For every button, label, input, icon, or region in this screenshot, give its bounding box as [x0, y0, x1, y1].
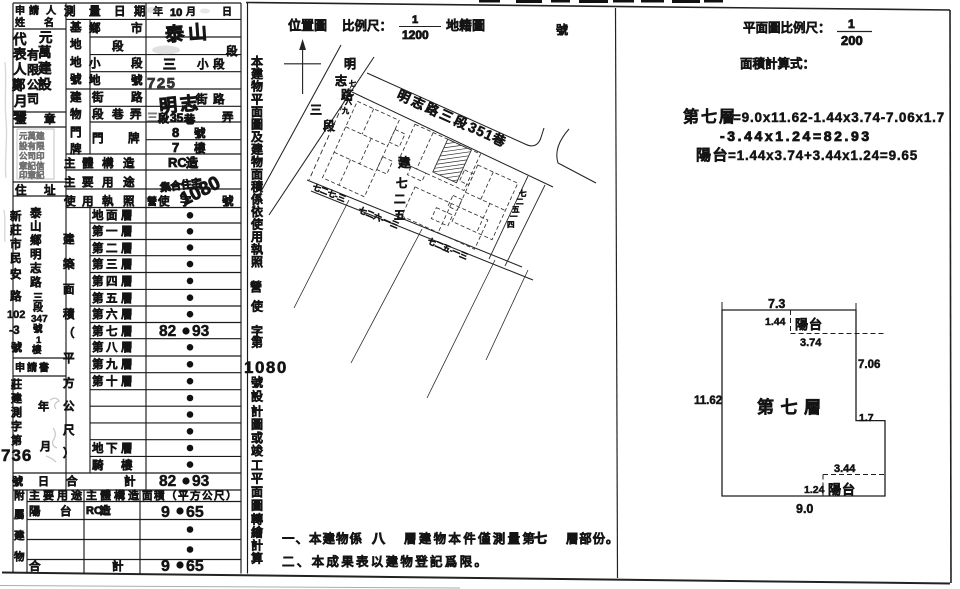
svg-text:路: 路	[10, 289, 22, 303]
svg-text:要: 要	[82, 176, 94, 189]
svg-text:號: 號	[70, 72, 82, 86]
svg-text:號: 號	[194, 126, 206, 140]
svg-text:陽台: 陽台	[696, 146, 729, 164]
svg-text:名: 名	[44, 16, 54, 29]
svg-text:民: 民	[10, 252, 22, 265]
svg-text:號: 號	[222, 194, 234, 208]
svg-text:主: 主	[86, 488, 97, 502]
svg-text:圖: 圖	[251, 418, 263, 432]
svg-text:營: 營	[250, 279, 262, 294]
svg-text:號: 號	[556, 22, 568, 37]
svg-text:層: 層	[121, 258, 133, 271]
svg-text:請: 請	[27, 361, 37, 374]
svg-text:公司印: 公司印	[19, 151, 45, 161]
svg-text:1.44: 1.44	[765, 316, 786, 328]
svg-text:人: 人	[13, 62, 27, 77]
svg-text:積: 積	[62, 307, 75, 321]
svg-text:93: 93	[192, 323, 210, 340]
svg-text:造: 造	[128, 488, 140, 502]
svg-text:明志路三段351巷: 明志路三段351巷	[395, 86, 511, 150]
svg-text:照: 照	[123, 195, 135, 208]
svg-text:營: 營	[147, 195, 157, 208]
svg-text:要: 要	[43, 489, 54, 502]
svg-text:層建物本件僅測量第: 層建物本件僅測量第	[404, 531, 537, 546]
svg-text:司: 司	[27, 92, 39, 106]
svg-text:繪: 繪	[251, 525, 264, 540]
svg-text:月: 月	[13, 94, 28, 109]
svg-text:段: 段	[92, 107, 104, 121]
svg-text:）: ）	[63, 446, 75, 460]
svg-text:1: 1	[848, 17, 855, 31]
svg-text:九: 九	[341, 106, 349, 115]
svg-text:面: 面	[106, 209, 118, 222]
svg-text:六: 六	[345, 97, 352, 106]
svg-text:一、本建物係: 一、本建物係	[282, 531, 363, 546]
svg-text:基: 基	[69, 20, 82, 34]
svg-text:轉: 轉	[251, 512, 263, 527]
svg-text:樓: 樓	[121, 458, 133, 472]
svg-text:3.44: 3.44	[834, 463, 856, 475]
svg-text:元: 元	[39, 30, 53, 45]
svg-text:七: 七	[534, 531, 547, 546]
svg-text:構: 構	[102, 156, 114, 170]
svg-text:層: 層	[121, 325, 133, 338]
svg-text:八: 八	[105, 341, 118, 354]
svg-text:725: 725	[147, 75, 177, 92]
svg-text:地: 地	[92, 208, 104, 222]
svg-text:9: 9	[161, 558, 170, 575]
svg-text:段: 段	[226, 44, 238, 58]
svg-text:比例尺：: 比例尺：	[342, 18, 392, 33]
svg-text:地籍圖: 地籍圖	[446, 18, 485, 33]
svg-text:樓: 樓	[194, 141, 206, 155]
svg-text:建: 建	[13, 529, 25, 542]
svg-text:書: 書	[39, 361, 49, 374]
svg-text:65: 65	[186, 504, 204, 521]
svg-text:門: 門	[92, 132, 104, 145]
svg-text:層: 層	[121, 275, 133, 288]
svg-text:計: 計	[251, 538, 263, 553]
svg-text:址: 址	[44, 183, 56, 197]
svg-text:鄉: 鄉	[89, 21, 101, 35]
svg-text:主: 主	[64, 175, 76, 189]
svg-text:第: 第	[92, 224, 104, 238]
svg-text:門: 門	[70, 126, 82, 139]
svg-text:七: 七	[106, 324, 118, 338]
svg-text:7.06: 7.06	[858, 359, 880, 371]
svg-text:方: 方	[63, 376, 75, 390]
svg-text:段: 段	[323, 118, 336, 133]
svg-text:或: 或	[251, 430, 263, 445]
svg-text:10: 10	[170, 7, 182, 19]
svg-text:七: 七	[396, 176, 408, 190]
svg-text:人: 人	[46, 4, 57, 17]
svg-text:建: 建	[37, 60, 52, 76]
svg-text:章: 章	[44, 112, 56, 126]
svg-text:照: 照	[251, 254, 263, 269]
svg-text:安: 安	[10, 267, 22, 281]
svg-text:用: 用	[81, 195, 94, 208]
svg-text:附: 附	[14, 489, 25, 502]
svg-text:月: 月	[39, 440, 51, 453]
svg-text:93: 93	[192, 473, 210, 490]
svg-text:陽: 陽	[29, 504, 41, 518]
svg-text:弄: 弄	[221, 111, 234, 124]
svg-text:建: 建	[398, 155, 411, 170]
svg-text:圖: 圖	[251, 499, 263, 513]
svg-text:第: 第	[92, 291, 104, 305]
svg-text:申: 申	[15, 4, 25, 17]
svg-text:七: 七	[349, 79, 356, 88]
svg-text:1: 1	[412, 14, 418, 26]
svg-text:巷: 巷	[111, 107, 124, 121]
svg-text:樓: 樓	[32, 344, 42, 356]
svg-text:二: 二	[394, 194, 406, 206]
svg-text:第: 第	[11, 433, 22, 447]
svg-text:算: 算	[251, 551, 263, 566]
svg-text:-3: -3	[9, 323, 20, 337]
svg-text:工: 工	[251, 459, 263, 473]
svg-text:三: 三	[147, 111, 158, 124]
svg-text:代: 代	[12, 31, 27, 47]
svg-text:四: 四	[507, 220, 515, 229]
svg-text:主: 主	[29, 488, 40, 502]
svg-text:年: 年	[38, 399, 49, 413]
svg-text:泰山: 泰山	[163, 20, 212, 46]
svg-text:層: 層	[121, 225, 133, 238]
svg-text:1080: 1080	[244, 358, 288, 377]
svg-text:鄉: 鄉	[30, 233, 42, 247]
svg-text:弄: 弄	[129, 108, 142, 121]
svg-text:102: 102	[7, 309, 25, 321]
svg-text:段: 段	[158, 111, 169, 125]
svg-text:物: 物	[14, 550, 25, 563]
svg-text:第: 第	[92, 357, 104, 371]
svg-text:測: 測	[64, 4, 76, 18]
svg-text:面: 面	[63, 283, 75, 296]
svg-text:日: 日	[222, 6, 232, 18]
svg-text:7: 7	[172, 140, 179, 155]
svg-text:莊: 莊	[9, 223, 22, 237]
svg-text:平: 平	[251, 472, 263, 486]
svg-text:9: 9	[161, 504, 170, 521]
svg-text:日: 日	[38, 475, 49, 488]
svg-text:11.62: 11.62	[694, 395, 722, 407]
svg-text:1200: 1200	[402, 28, 429, 42]
svg-text:造: 造	[123, 156, 135, 170]
svg-text:四: 四	[106, 275, 118, 288]
svg-text:面積計算式：: 面積計算式：	[740, 56, 815, 71]
svg-text:號: 號	[33, 323, 43, 335]
svg-text:第七層: 第七層	[683, 107, 737, 126]
svg-text:地: 地	[70, 37, 82, 51]
svg-text:莊: 莊	[10, 377, 22, 391]
svg-text:1.24: 1.24	[804, 484, 825, 496]
svg-text:設有限: 設有限	[19, 141, 45, 151]
svg-text:第七層: 第七層	[757, 397, 828, 417]
svg-text:=9.0x11.62-1.44x3.74-7.06x1.7: =9.0x11.62-1.44x3.74-7.06x1.7	[733, 110, 945, 125]
svg-text:層: 層	[121, 292, 133, 305]
svg-text:公: 公	[63, 400, 75, 413]
svg-text:途: 途	[71, 488, 83, 502]
svg-text:山: 山	[30, 219, 42, 233]
svg-text:路: 路	[131, 90, 143, 104]
svg-text:1.7: 1.7	[859, 412, 874, 424]
svg-text:街: 街	[91, 90, 104, 104]
svg-text:量: 量	[89, 4, 101, 18]
svg-text:號: 號	[12, 474, 23, 488]
svg-text:35: 35	[170, 111, 184, 125]
svg-text:建: 建	[70, 90, 82, 104]
svg-text:第: 第	[92, 374, 104, 388]
svg-text:牌: 牌	[128, 131, 140, 145]
svg-text:RC: RC	[168, 155, 187, 170]
svg-text:萬: 萬	[38, 44, 52, 60]
svg-text:表: 表	[13, 46, 27, 62]
svg-text:二、本成果表以建物登記爲限。: 二、本成果表以建物登記爲限。	[282, 554, 489, 569]
svg-text:九: 九	[105, 357, 118, 371]
svg-text:設: 設	[251, 389, 264, 404]
svg-text:三: 三	[163, 57, 176, 72]
svg-text:段: 段	[112, 39, 124, 53]
svg-text:合: 合	[66, 474, 78, 488]
svg-text:七二七-三: 七二七-三	[311, 182, 347, 204]
svg-text:層部份。: 層部份。	[566, 531, 619, 546]
svg-text:五: 五	[106, 292, 118, 305]
svg-text:蓋: 蓋	[15, 112, 27, 126]
svg-text:下: 下	[106, 442, 118, 455]
svg-text:層: 層	[121, 375, 133, 388]
svg-text:一: 一	[106, 226, 118, 238]
svg-text:構: 構	[114, 488, 125, 502]
svg-text:明: 明	[344, 57, 356, 71]
svg-text:82: 82	[159, 473, 176, 490]
svg-text:街: 街	[195, 92, 208, 106]
svg-text:主: 主	[64, 156, 76, 170]
svg-text:市: 市	[131, 21, 143, 35]
svg-text:小: 小	[88, 56, 101, 70]
svg-text:造: 造	[100, 504, 111, 517]
svg-text:執: 執	[102, 194, 114, 208]
svg-text:小: 小	[196, 57, 209, 71]
svg-text:元萬建: 元萬建	[19, 131, 45, 141]
svg-text:層: 層	[121, 209, 133, 222]
svg-text:合: 合	[29, 559, 41, 573]
svg-text:地: 地	[89, 73, 101, 87]
svg-text:台: 台	[60, 504, 72, 518]
svg-text:姓: 姓	[14, 16, 25, 29]
svg-text:尺: 尺	[63, 424, 75, 437]
svg-text:計: 計	[251, 404, 263, 419]
svg-text:面積（平方公尺）: 面積（平方公尺）	[142, 489, 238, 502]
svg-text:騎: 騎	[92, 458, 104, 472]
svg-text:用: 用	[57, 489, 68, 502]
svg-text:用: 用	[101, 176, 114, 189]
svg-text:十: 十	[106, 374, 118, 388]
svg-text:設: 設	[38, 76, 52, 92]
svg-text:路: 路	[213, 92, 225, 106]
svg-text:陽台: 陽台	[828, 482, 856, 497]
svg-text:第: 第	[92, 257, 104, 271]
svg-text:平: 平	[63, 352, 75, 365]
svg-text:三: 三	[310, 103, 322, 117]
svg-text:段: 段	[131, 56, 143, 70]
svg-text:82: 82	[159, 323, 176, 340]
svg-text:測: 測	[11, 405, 22, 419]
svg-text:二: 二	[106, 243, 118, 255]
svg-text:住: 住	[15, 183, 27, 197]
svg-text:請: 請	[29, 4, 39, 17]
svg-text:第: 第	[92, 324, 104, 338]
svg-text:志: 志	[30, 261, 42, 275]
svg-text:平面圖比例尺：: 平面圖比例尺：	[743, 20, 831, 35]
svg-text:使: 使	[250, 299, 264, 314]
svg-text:層: 層	[121, 442, 133, 455]
svg-text:地: 地	[70, 55, 82, 69]
svg-text:-3.44x1.24=82.93: -3.44x1.24=82.93	[720, 128, 872, 144]
svg-text:面: 面	[251, 485, 263, 499]
svg-text:物: 物	[70, 107, 82, 121]
svg-text:新: 新	[10, 209, 22, 223]
svg-text:第: 第	[92, 241, 104, 255]
svg-text:層: 層	[121, 308, 133, 321]
svg-text:號: 號	[131, 73, 143, 87]
svg-text:屬: 屬	[14, 508, 25, 521]
svg-text:日: 日	[114, 5, 126, 18]
svg-text:造: 造	[186, 155, 199, 170]
svg-text:使: 使	[157, 194, 170, 208]
svg-text:物: 物	[251, 79, 263, 94]
svg-text:三: 三	[106, 258, 118, 271]
svg-text:200: 200	[841, 33, 863, 48]
svg-text:層: 層	[121, 341, 133, 354]
svg-text:印章記: 印章記	[19, 170, 45, 180]
svg-text:8: 8	[172, 125, 179, 140]
svg-text:號: 號	[251, 375, 263, 390]
svg-text:第: 第	[251, 335, 263, 350]
svg-text:竣: 竣	[251, 443, 264, 458]
svg-text:第: 第	[92, 307, 104, 321]
svg-text:泰: 泰	[29, 206, 42, 220]
svg-text:層: 層	[121, 358, 133, 371]
svg-text:使: 使	[63, 194, 76, 208]
svg-text:期: 期	[134, 4, 146, 18]
svg-text:巷: 巷	[183, 112, 196, 126]
svg-text:陽台: 陽台	[795, 317, 823, 332]
svg-text:八: 八	[371, 531, 386, 546]
svg-text:築: 築	[62, 257, 75, 271]
svg-text:計: 計	[112, 559, 124, 573]
svg-text:計: 計	[124, 474, 136, 488]
svg-text:第: 第	[92, 340, 104, 354]
svg-text:體: 體	[100, 488, 111, 502]
svg-text:3.74: 3.74	[800, 337, 822, 349]
svg-text:路: 路	[30, 275, 42, 289]
svg-text:字: 字	[11, 419, 22, 433]
svg-text:段: 段	[213, 57, 225, 71]
svg-text:號: 號	[11, 340, 22, 354]
svg-text:9.0: 9.0	[796, 502, 813, 516]
svg-text:65: 65	[186, 558, 204, 575]
svg-text:途: 途	[123, 175, 135, 189]
svg-text:志: 志	[335, 73, 347, 88]
svg-text:七二五-一三: 七二五-一三	[426, 236, 469, 262]
svg-text:=1.44x3.74+3.44x1.24=9.65: =1.44x3.74+3.44x1.24=9.65	[728, 148, 918, 163]
svg-text:層: 層	[121, 242, 133, 255]
svg-text:（: （	[63, 326, 75, 340]
svg-text:六: 六	[106, 307, 118, 321]
svg-text:鄭: 鄭	[12, 77, 26, 93]
svg-text:地: 地	[92, 441, 104, 455]
svg-text:段: 段	[33, 301, 43, 314]
svg-text:月: 月	[185, 6, 196, 18]
svg-text:體: 體	[82, 156, 94, 170]
svg-text:建: 建	[11, 391, 23, 405]
svg-text:牌: 牌	[70, 142, 82, 156]
svg-text:市: 市	[10, 237, 22, 251]
svg-text:第: 第	[92, 274, 104, 288]
svg-text:明: 明	[30, 247, 42, 261]
svg-text:申: 申	[15, 361, 25, 374]
svg-text:7.3: 7.3	[768, 297, 785, 311]
svg-text:736: 736	[1, 446, 32, 465]
svg-text:建: 建	[63, 232, 75, 246]
svg-text:位置圖: 位置圖	[288, 18, 327, 33]
